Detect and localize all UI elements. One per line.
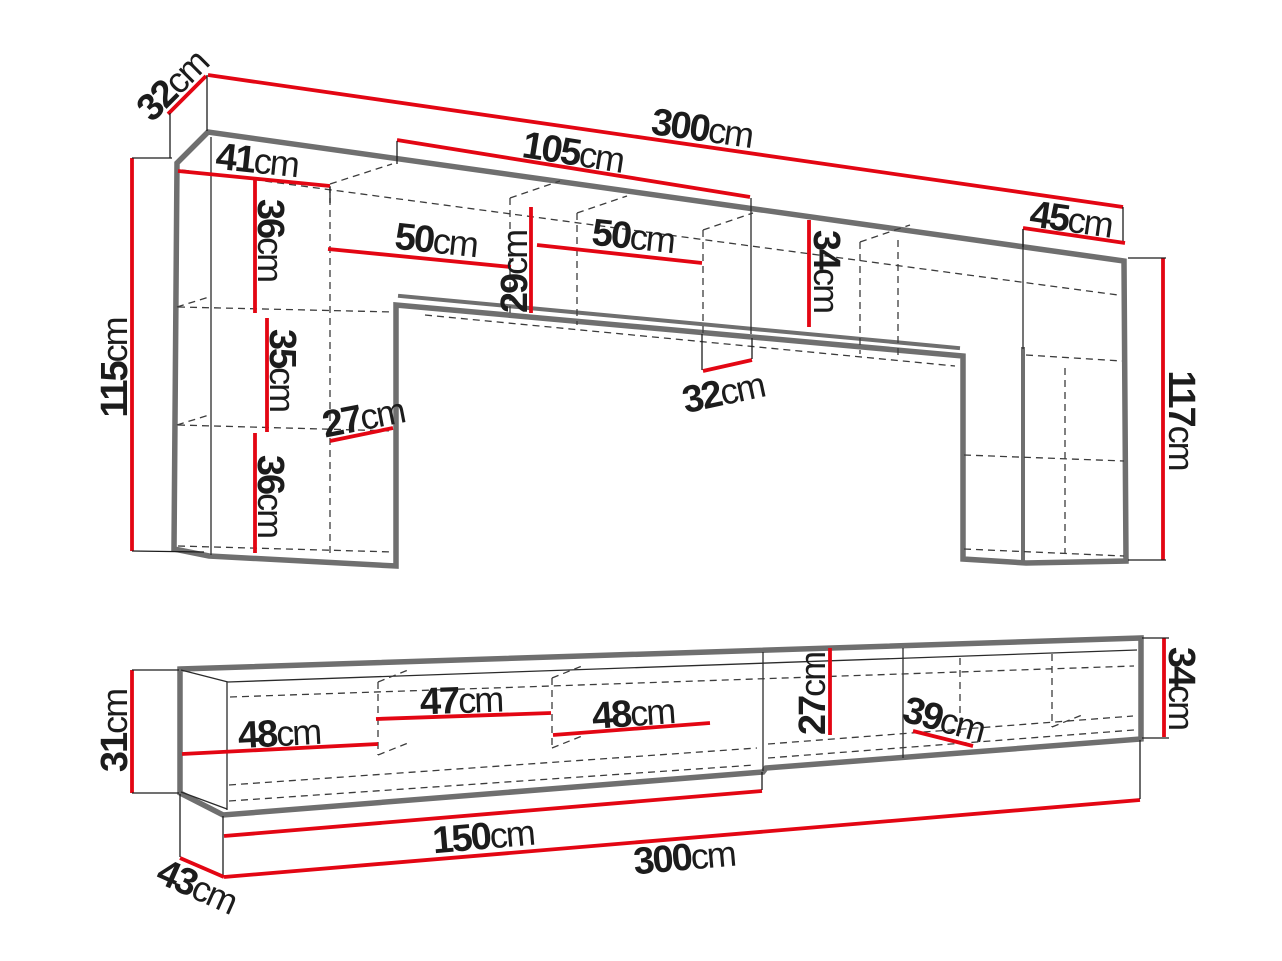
dim-unit: cm [94,318,135,362]
dim-value: 50 [393,216,436,262]
dim-stand-compartment2-width: 47cm [376,679,551,724]
dim-unit: cm [250,493,291,537]
dim-wall-top-shelf-height: 36cm [249,177,291,313]
dim-wall-middle-shelf-height: 35cm [261,318,303,432]
stand-left-depth-edge [181,670,228,682]
dim-unit: cm [806,268,847,312]
dim-value: 36 [249,199,291,238]
dim-unit: cm [275,711,321,754]
dim-value: 117 [1160,370,1202,426]
dim-value: 50 [590,212,633,258]
dim-value: 34 [1160,647,1202,687]
dim-label: 300cm [632,833,737,884]
dim-unit: cm [628,216,676,261]
dim-label: 39cm [899,689,989,751]
dim-label: 45cm [1027,193,1114,246]
dim-unit: cm [356,390,407,439]
dim-wall-inner-height: 29cm [494,207,536,313]
bridge-underside-line [400,296,958,348]
dim-value: 34 [805,230,847,270]
dim-label: 50cm [393,216,479,266]
dim-label: 29cm [494,231,536,313]
dim-label: 36cm [249,455,291,537]
dim-unit: cm [94,690,135,734]
dim-wall-bridge-height: 34cm [805,220,847,327]
wall-unit-outline [174,132,1126,566]
dim-label: 47cm [419,679,503,724]
diagram-canvas: 32cm 300cm 105cm 41cm 36cm 50cm [0,0,1282,961]
dim-unit: cm [689,833,736,878]
dim-value: 36 [249,455,291,494]
dim-unit: cm [576,133,626,180]
dim-unit: cm [1161,685,1202,729]
dim-unit: cm [494,231,535,275]
dim-stand-compartment3-width: 48cm [553,690,710,738]
dim-wall-right-height: 117cm [1128,258,1202,560]
dim-wall-right-compartment-width: 50cm [537,212,702,263]
dim-unit: cm [431,220,479,265]
dim-value: 35 [261,329,303,369]
dim-label: 34cm [805,230,847,312]
dim-label: 48cm [237,711,321,757]
dim-value: 48 [591,693,633,738]
dim-label: 43cm [150,851,242,923]
dim-label: 31cm [94,690,136,772]
dim-unit: cm [1065,199,1114,246]
dim-value: 105 [519,124,584,175]
dim-label: 32cm [679,364,768,422]
dim-unit: cm [1161,426,1202,470]
dim-wall-left-compartment-width: 50cm [328,216,511,267]
dim-label: 48cm [591,690,676,738]
dim-unit: cm [936,699,989,750]
dim-unit: cm [250,237,291,281]
dim-unit: cm [706,109,755,156]
dim-label: 32cm [129,42,217,130]
dim-unit: cm [252,140,300,185]
wall-unit-drawing: 32cm 300cm 105cm 41cm 36cm 50cm [94,42,1202,566]
dim-value: 41 [214,136,258,182]
dim-label: 36cm [249,199,291,281]
dim-stand-right-height: 34cm [1142,638,1202,738]
dim-wall-bridge-depth: 32cm [679,334,768,422]
dim-wall-bottom-shelf-height: 36cm [249,433,291,553]
dim-wall-total-width: 300cm [207,75,1123,242]
dim-wall-left-height: 115cm [94,158,204,552]
dim-value: 29 [494,274,536,313]
dim-value: 300 [632,836,694,883]
dim-value: 300 [649,101,713,151]
dim-value: 47 [419,680,460,723]
dim-label: 115cm [94,318,136,417]
dim-unit: cm [716,364,768,413]
dim-stand-right-compartment-depth: 39cm [899,689,989,751]
dim-wall-top-depth: 32cm [129,42,217,158]
dim-label: 27cm [792,653,834,735]
tv-stand-drawing: 31cm 48cm 47cm 48cm 27cm 39cm 34cm [94,638,1202,923]
dim-label: 117cm [1160,370,1202,469]
dim-label: 300cm [649,101,755,157]
dim-stand-inner-height: 27cm [792,648,834,735]
dim-label: 34cm [1160,647,1202,729]
dim-label: 50cm [590,212,676,262]
dim-label: 35cm [261,329,303,411]
dim-unit: cm [792,653,833,697]
dim-stand-total-width: 300cm [224,740,1140,883]
dim-unit: cm [457,679,502,722]
dim-value: 48 [237,713,278,757]
dim-value: 31 [94,732,136,772]
dim-unit: cm [629,690,676,734]
dim-wall-right-top-width: 45cm [1023,193,1125,247]
dim-stand-left-height: 31cm [94,670,179,793]
dim-unit: cm [262,367,303,411]
dim-value: 115 [94,360,136,417]
dim-value: 27 [792,696,834,735]
furniture-dimension-diagram: 32cm 300cm 105cm 41cm 36cm 50cm [0,0,1282,961]
dim-stand-compartment1-width: 48cm [182,711,378,757]
